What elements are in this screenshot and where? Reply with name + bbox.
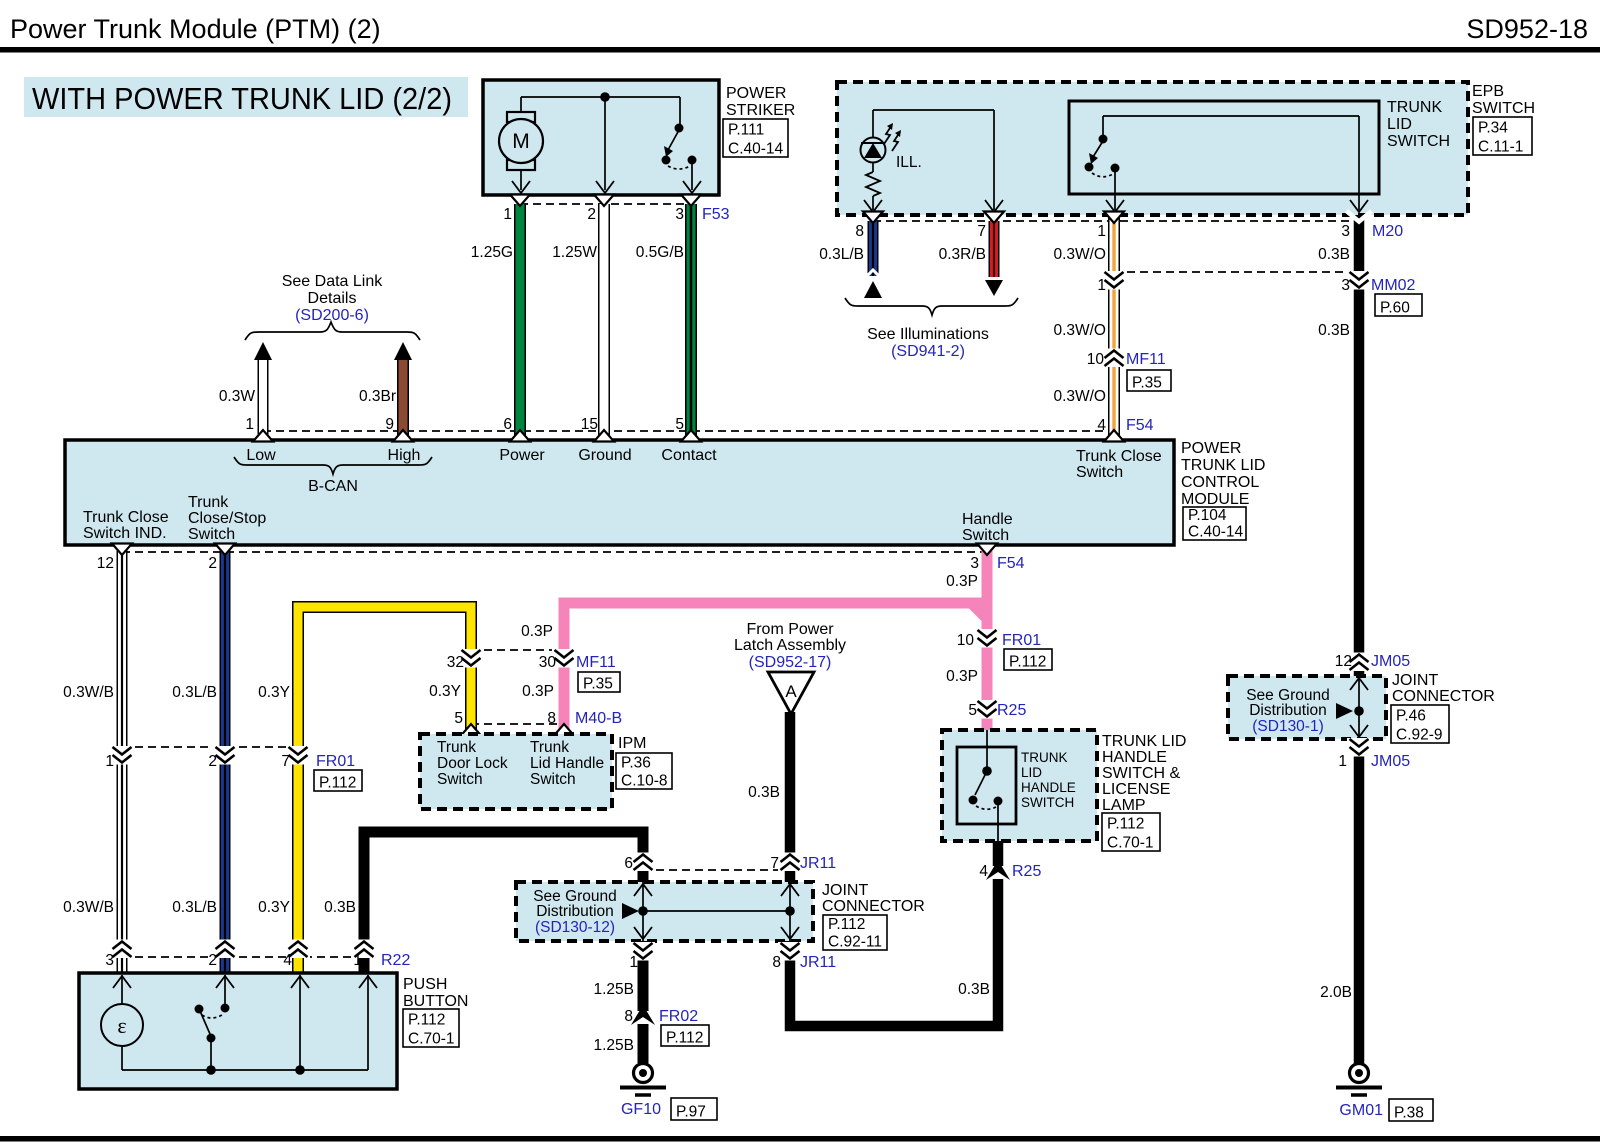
svg-text:MM02: MM02 — [1371, 277, 1416, 294]
svg-text:P.35: P.35 — [583, 676, 613, 693]
svg-text:P.46: P.46 — [1396, 708, 1426, 725]
svg-text:4: 4 — [283, 952, 292, 969]
svg-text:JR11: JR11 — [800, 954, 836, 971]
svg-text:2: 2 — [208, 952, 217, 969]
svg-text:R22: R22 — [381, 952, 410, 969]
svg-text:P.104: P.104 — [1188, 507, 1227, 524]
svg-text:5: 5 — [675, 416, 684, 433]
svg-text:Trunk: Trunk — [188, 494, 229, 511]
svg-text:POWER: POWER — [1181, 440, 1241, 457]
svg-text:8: 8 — [855, 223, 864, 240]
svg-text:CONNECTOR: CONNECTOR — [822, 898, 925, 915]
svg-text:1: 1 — [503, 206, 512, 223]
svg-text:0.3L/B: 0.3L/B — [172, 899, 217, 916]
svg-text:BUTTON: BUTTON — [403, 993, 468, 1010]
svg-text:Switch: Switch — [530, 771, 576, 788]
svg-text:Contact: Contact — [661, 447, 717, 464]
svg-text:SWITCH: SWITCH — [1021, 795, 1074, 810]
svg-text:M: M — [512, 130, 530, 153]
svg-text:JM05: JM05 — [1371, 653, 1410, 670]
svg-text:8: 8 — [624, 1008, 633, 1025]
svg-text:Latch Assembly: Latch Assembly — [734, 637, 846, 654]
svg-text:C.92-11: C.92-11 — [828, 934, 882, 951]
svg-text:(SD130-1): (SD130-1) — [1252, 718, 1324, 735]
svg-text:TRUNK: TRUNK — [1021, 750, 1068, 765]
svg-text:6: 6 — [503, 416, 512, 433]
svg-text:0.3P: 0.3P — [522, 683, 554, 700]
svg-text:Switch: Switch — [962, 527, 1009, 544]
svg-text:3: 3 — [970, 555, 979, 572]
svg-text:1: 1 — [1097, 277, 1106, 294]
svg-text:Ground: Ground — [578, 447, 631, 464]
svg-text:0.3B: 0.3B — [748, 784, 780, 801]
svg-text:0.3Br: 0.3Br — [359, 388, 396, 405]
svg-text:R25: R25 — [997, 702, 1026, 719]
svg-text:1: 1 — [105, 753, 114, 770]
svg-text:1: 1 — [353, 952, 362, 969]
svg-text:2.0B: 2.0B — [1320, 984, 1352, 1001]
svg-text:SWITCH: SWITCH — [1472, 100, 1535, 117]
svg-text:5: 5 — [968, 702, 977, 719]
svg-text:PUSH: PUSH — [403, 976, 447, 993]
svg-text:F53: F53 — [702, 206, 730, 223]
svg-text:7: 7 — [770, 855, 779, 872]
svg-text:0.3Y: 0.3Y — [258, 899, 290, 916]
svg-text:0.3B: 0.3B — [1318, 322, 1350, 339]
svg-text:6: 6 — [624, 855, 633, 872]
svg-text:0.3P: 0.3P — [946, 668, 978, 685]
svg-text:4: 4 — [1097, 417, 1106, 434]
svg-text:C.40-14: C.40-14 — [1188, 524, 1244, 541]
svg-text:C.70-1: C.70-1 — [1107, 835, 1154, 852]
svg-text:LAMP: LAMP — [1102, 797, 1146, 814]
svg-text:Trunk: Trunk — [530, 739, 569, 756]
svg-text:TRUNK: TRUNK — [1387, 99, 1442, 116]
svg-text:P.112: P.112 — [319, 775, 356, 792]
svg-text:SWITCH &: SWITCH & — [1102, 765, 1181, 782]
svg-text:ε: ε — [117, 1013, 126, 1038]
svg-text:SD952-18: SD952-18 — [1466, 14, 1588, 44]
svg-text:5: 5 — [454, 710, 463, 727]
svg-text:1.25B: 1.25B — [593, 981, 634, 998]
svg-text:2: 2 — [208, 753, 217, 770]
svg-text:1: 1 — [1338, 753, 1347, 770]
svg-text:(SD941-2): (SD941-2) — [891, 343, 965, 360]
svg-text:0.3P: 0.3P — [946, 573, 978, 590]
svg-text:Trunk Close: Trunk Close — [83, 509, 169, 526]
svg-text:HANDLE: HANDLE — [1021, 780, 1076, 795]
svg-text:10: 10 — [1087, 351, 1105, 368]
svg-text:0.3R/B: 0.3R/B — [939, 246, 986, 263]
svg-text:15: 15 — [581, 416, 598, 433]
svg-text:Power Trunk Module (PTM) (2): Power Trunk Module (PTM) (2) — [10, 14, 381, 44]
svg-text:FR01: FR01 — [1002, 632, 1041, 649]
svg-text:0.3B: 0.3B — [958, 981, 990, 998]
svg-text:F54: F54 — [997, 555, 1025, 572]
svg-text:P.112: P.112 — [666, 1030, 703, 1047]
svg-text:1.25G: 1.25G — [471, 244, 513, 261]
svg-text:CONTROL: CONTROL — [1181, 474, 1259, 491]
svg-text:Distribution: Distribution — [1249, 702, 1327, 719]
svg-text:0.3W/O: 0.3W/O — [1053, 246, 1106, 263]
svg-text:8: 8 — [772, 954, 781, 971]
svg-text:0.5G/B: 0.5G/B — [636, 244, 684, 261]
svg-text:0.3W: 0.3W — [219, 388, 256, 405]
svg-text:FR02: FR02 — [659, 1008, 698, 1025]
svg-text:TRUNK LID: TRUNK LID — [1102, 733, 1186, 750]
svg-text:Switch: Switch — [437, 771, 483, 788]
svg-text:8: 8 — [547, 710, 556, 727]
svg-text:0.3L/B: 0.3L/B — [172, 684, 217, 701]
svg-text:P.38: P.38 — [1394, 1105, 1424, 1122]
svg-text:Close/Stop: Close/Stop — [188, 510, 266, 527]
svg-text:P.112: P.112 — [1009, 654, 1046, 671]
svg-text:STRIKER: STRIKER — [726, 102, 795, 119]
svg-text:JOINT: JOINT — [1392, 672, 1438, 689]
svg-text:Door Lock: Door Lock — [437, 755, 508, 772]
svg-text:P.112: P.112 — [1107, 816, 1144, 833]
svg-text:JOINT: JOINT — [822, 882, 868, 899]
svg-text:C.40-14: C.40-14 — [728, 141, 784, 158]
svg-text:LICENSE: LICENSE — [1102, 781, 1170, 798]
svg-text:1.25W: 1.25W — [552, 244, 597, 261]
svg-text:0.3W/O: 0.3W/O — [1053, 322, 1106, 339]
svg-text:2: 2 — [208, 555, 217, 572]
svg-text:0.3B: 0.3B — [324, 899, 356, 916]
svg-text:0.3Y: 0.3Y — [429, 683, 461, 700]
svg-text:GF10: GF10 — [621, 1101, 661, 1118]
svg-text:9: 9 — [385, 416, 394, 433]
svg-text:See Data Link: See Data Link — [282, 273, 384, 290]
svg-text:0.3B: 0.3B — [1318, 246, 1350, 263]
svg-text:0.3W/B: 0.3W/B — [63, 684, 114, 701]
svg-text:R25: R25 — [1012, 863, 1041, 880]
svg-text:(SD130-12): (SD130-12) — [535, 919, 615, 936]
svg-text:P.35: P.35 — [1132, 375, 1162, 392]
svg-text:3: 3 — [105, 952, 114, 969]
svg-text:Switch: Switch — [1076, 464, 1123, 481]
svg-text:Trunk Close: Trunk Close — [1076, 448, 1162, 465]
svg-text:JR11: JR11 — [800, 855, 836, 872]
svg-text:Power: Power — [499, 447, 545, 464]
svg-text:IPM: IPM — [618, 735, 646, 752]
svg-text:3: 3 — [1341, 277, 1350, 294]
svg-text:LID: LID — [1387, 116, 1412, 133]
svg-text:A: A — [785, 682, 797, 701]
svg-text:1: 1 — [1097, 223, 1106, 240]
svg-text:Trunk: Trunk — [437, 739, 476, 756]
svg-text:0.3P: 0.3P — [521, 623, 553, 640]
svg-text:(SD952-17): (SD952-17) — [749, 654, 832, 671]
svg-text:TRUNK LID: TRUNK LID — [1181, 457, 1265, 474]
svg-text:WITH POWER TRUNK LID (2/2): WITH POWER TRUNK LID (2/2) — [32, 81, 452, 116]
svg-text:7: 7 — [281, 753, 290, 770]
svg-text:32: 32 — [447, 654, 464, 671]
svg-text:3: 3 — [675, 206, 684, 223]
svg-text:M40-B: M40-B — [575, 710, 622, 727]
svg-text:LID: LID — [1021, 765, 1042, 780]
svg-text:M20: M20 — [1372, 223, 1403, 240]
svg-text:P.34: P.34 — [1478, 120, 1508, 137]
svg-text:Lid Handle: Lid Handle — [530, 755, 604, 772]
svg-text:Switch IND.: Switch IND. — [83, 525, 167, 542]
svg-text:P.112: P.112 — [828, 916, 865, 933]
svg-text:GM01: GM01 — [1339, 1102, 1383, 1119]
svg-text:0.3W/O: 0.3W/O — [1053, 388, 1106, 405]
svg-text:CONNECTOR: CONNECTOR — [1392, 688, 1495, 705]
svg-text:12: 12 — [97, 555, 114, 572]
svg-text:JM05: JM05 — [1371, 753, 1410, 770]
svg-text:From Power: From Power — [746, 621, 834, 638]
svg-text:0.3L/B: 0.3L/B — [819, 246, 864, 263]
svg-text:Details: Details — [308, 290, 357, 307]
svg-text:2: 2 — [587, 206, 596, 223]
svg-text:POWER: POWER — [726, 85, 786, 102]
svg-text:7: 7 — [977, 223, 986, 240]
svg-text:C.11-1: C.11-1 — [1478, 139, 1523, 156]
svg-text:SWITCH: SWITCH — [1387, 133, 1450, 150]
svg-text:FR01: FR01 — [316, 753, 355, 770]
svg-text:3: 3 — [1341, 223, 1350, 240]
svg-text:See Illuminations: See Illuminations — [867, 326, 989, 343]
svg-text:F54: F54 — [1126, 417, 1154, 434]
svg-text:MF11: MF11 — [1126, 351, 1166, 368]
svg-text:1.25B: 1.25B — [593, 1037, 634, 1054]
svg-text:1: 1 — [245, 416, 254, 433]
svg-text:(SD200-6): (SD200-6) — [295, 307, 369, 324]
svg-text:B-CAN: B-CAN — [308, 478, 358, 495]
svg-text:Low: Low — [246, 447, 276, 464]
svg-text:P.111: P.111 — [728, 122, 764, 139]
svg-text:0.3W/B: 0.3W/B — [63, 899, 114, 916]
svg-text:0.3Y: 0.3Y — [258, 684, 290, 701]
svg-text:P.60: P.60 — [1380, 300, 1410, 317]
svg-text:P.97: P.97 — [676, 1104, 706, 1121]
svg-text:MODULE: MODULE — [1181, 491, 1249, 508]
svg-text:12: 12 — [1335, 653, 1352, 670]
svg-text:C.70-1: C.70-1 — [408, 1031, 455, 1048]
svg-text:EPB: EPB — [1472, 83, 1504, 100]
svg-text:Distribution: Distribution — [536, 903, 614, 920]
svg-text:P.112: P.112 — [408, 1012, 445, 1029]
svg-text:P.36: P.36 — [621, 755, 651, 772]
svg-text:4: 4 — [979, 863, 988, 880]
svg-text:1: 1 — [629, 954, 638, 971]
svg-text:HANDLE: HANDLE — [1102, 749, 1167, 766]
svg-text:Handle: Handle — [962, 511, 1013, 528]
svg-text:ILL.: ILL. — [896, 154, 922, 171]
svg-text:30: 30 — [539, 654, 557, 671]
svg-text:High: High — [388, 447, 421, 464]
svg-text:C.10-8: C.10-8 — [621, 773, 668, 790]
svg-text:C.92-9: C.92-9 — [1396, 727, 1443, 744]
svg-text:Switch: Switch — [188, 526, 235, 543]
svg-text:10: 10 — [957, 632, 975, 649]
svg-text:MF11: MF11 — [576, 654, 616, 671]
